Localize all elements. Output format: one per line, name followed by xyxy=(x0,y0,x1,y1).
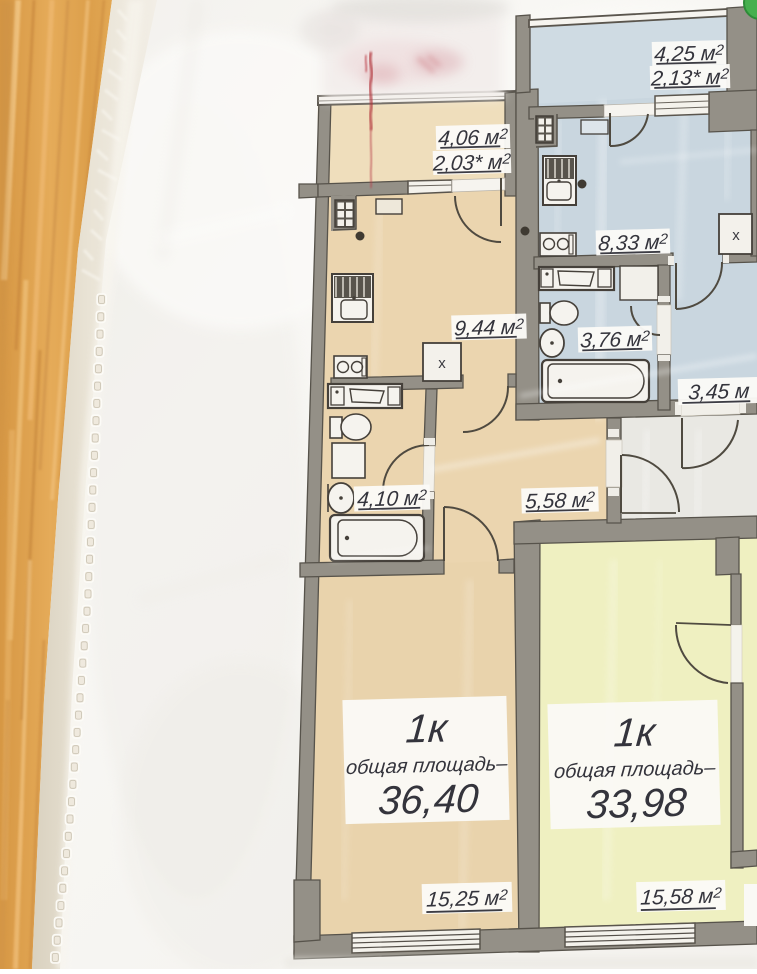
svg-text:36,40: 36,40 xyxy=(377,777,481,824)
svg-text:общая площадь–: общая площадь– xyxy=(553,757,717,783)
svg-text:x: x xyxy=(438,355,446,372)
svg-text:1к: 1к xyxy=(404,706,451,751)
svg-text:1к: 1к xyxy=(612,710,659,755)
svg-text:15,25 м2: 15,25 м2 xyxy=(426,887,509,912)
svg-text:общая площадь–: общая площадь– xyxy=(345,753,509,779)
svg-text:x: x xyxy=(732,227,740,244)
svg-text:33,98: 33,98 xyxy=(585,781,689,828)
svg-text:15,58 м2: 15,58 м2 xyxy=(640,885,723,910)
